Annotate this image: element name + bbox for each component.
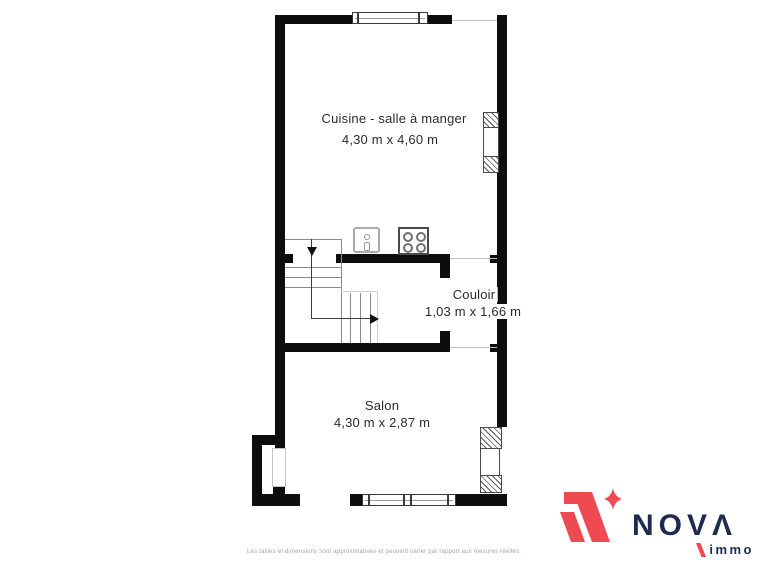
wall-divider-cuisine-stub [275,254,293,263]
window-frame-divider [447,495,449,505]
shutter-panel-icon [483,156,499,173]
opening-top-right [452,20,497,21]
wall-door-stub [273,486,285,496]
sink-icon [353,227,380,253]
wall-couloir-right-stub-top [490,255,497,263]
wall-bottom-right-segment [455,494,507,506]
stair-edge [285,239,342,240]
stove-burner [416,243,426,253]
disclaimer-text: Les tailles et dimensions sont approxima… [247,549,521,555]
floorplan-canvas: Cuisine - salle à manger 4,30 m x 4,60 m… [0,0,768,576]
stair-direction-arrow-down [307,247,317,256]
stair-direction-arrow-right [370,314,379,324]
wall-couloir-left-upper [440,254,450,278]
window-symbol-top [352,12,428,24]
wall-top-right [427,15,452,24]
room-dimensions-salon: 4,30 m x 2,87 m [334,415,430,430]
window-panel [480,448,500,476]
wall-couloir-right-stub-bottom [490,344,497,352]
window-frame-divider [357,13,359,23]
wall-right [497,15,507,427]
window-frame-divider [368,495,370,505]
nova-logo-mark-icon [556,486,626,546]
shutter-panel-icon [480,475,502,493]
stair-tread [285,267,341,268]
room-dimensions-cuisine: 4,30 m x 4,60 m [342,132,438,147]
wall-left [275,15,285,448]
wall-bottom-left-segment [350,494,362,506]
sink-drain [364,242,370,251]
stair-tread [285,277,341,278]
brand-subtitle-row: immo [696,542,754,557]
window-frame-divider [410,495,412,505]
brand-subtitle: immo [709,542,754,557]
stove-icon [398,227,429,255]
door-opening-bumpout [272,448,286,487]
window-symbol-bottom [362,494,456,506]
room-label-cuisine: Cuisine - salle à manger [322,111,467,126]
wall-top-left [275,15,352,24]
stove-burner [403,243,413,253]
stair-tread [285,287,341,288]
stair-winder-edge [341,291,378,292]
window-panel [483,127,499,157]
window-glass-line [355,18,425,19]
window-glass-line [365,500,453,501]
opening-couloir-salon [450,347,497,348]
stove-burner [416,232,426,242]
window-frame-divider [418,13,420,23]
brand-slash-icon [696,543,706,557]
room-label-couloir: Couloir [451,287,498,302]
brand-name: NOVΛ [632,509,737,543]
nova-immo-logo: NOVΛ immo [556,486,760,562]
wall-divider-cuisine [336,254,450,263]
shutter-panel-icon [480,427,502,449]
wall-divider-salon [280,343,450,352]
window-frame-divider [403,495,405,505]
stair-path-line [311,318,372,319]
room-label-salon: Salon [365,398,399,413]
opening-cuisine-couloir [450,258,497,259]
shutter-panel-icon [483,112,499,128]
sink-faucet [364,234,370,240]
stove-burner [403,232,413,242]
room-dimensions-couloir: 1,03 m x 1,66 m [423,304,523,319]
